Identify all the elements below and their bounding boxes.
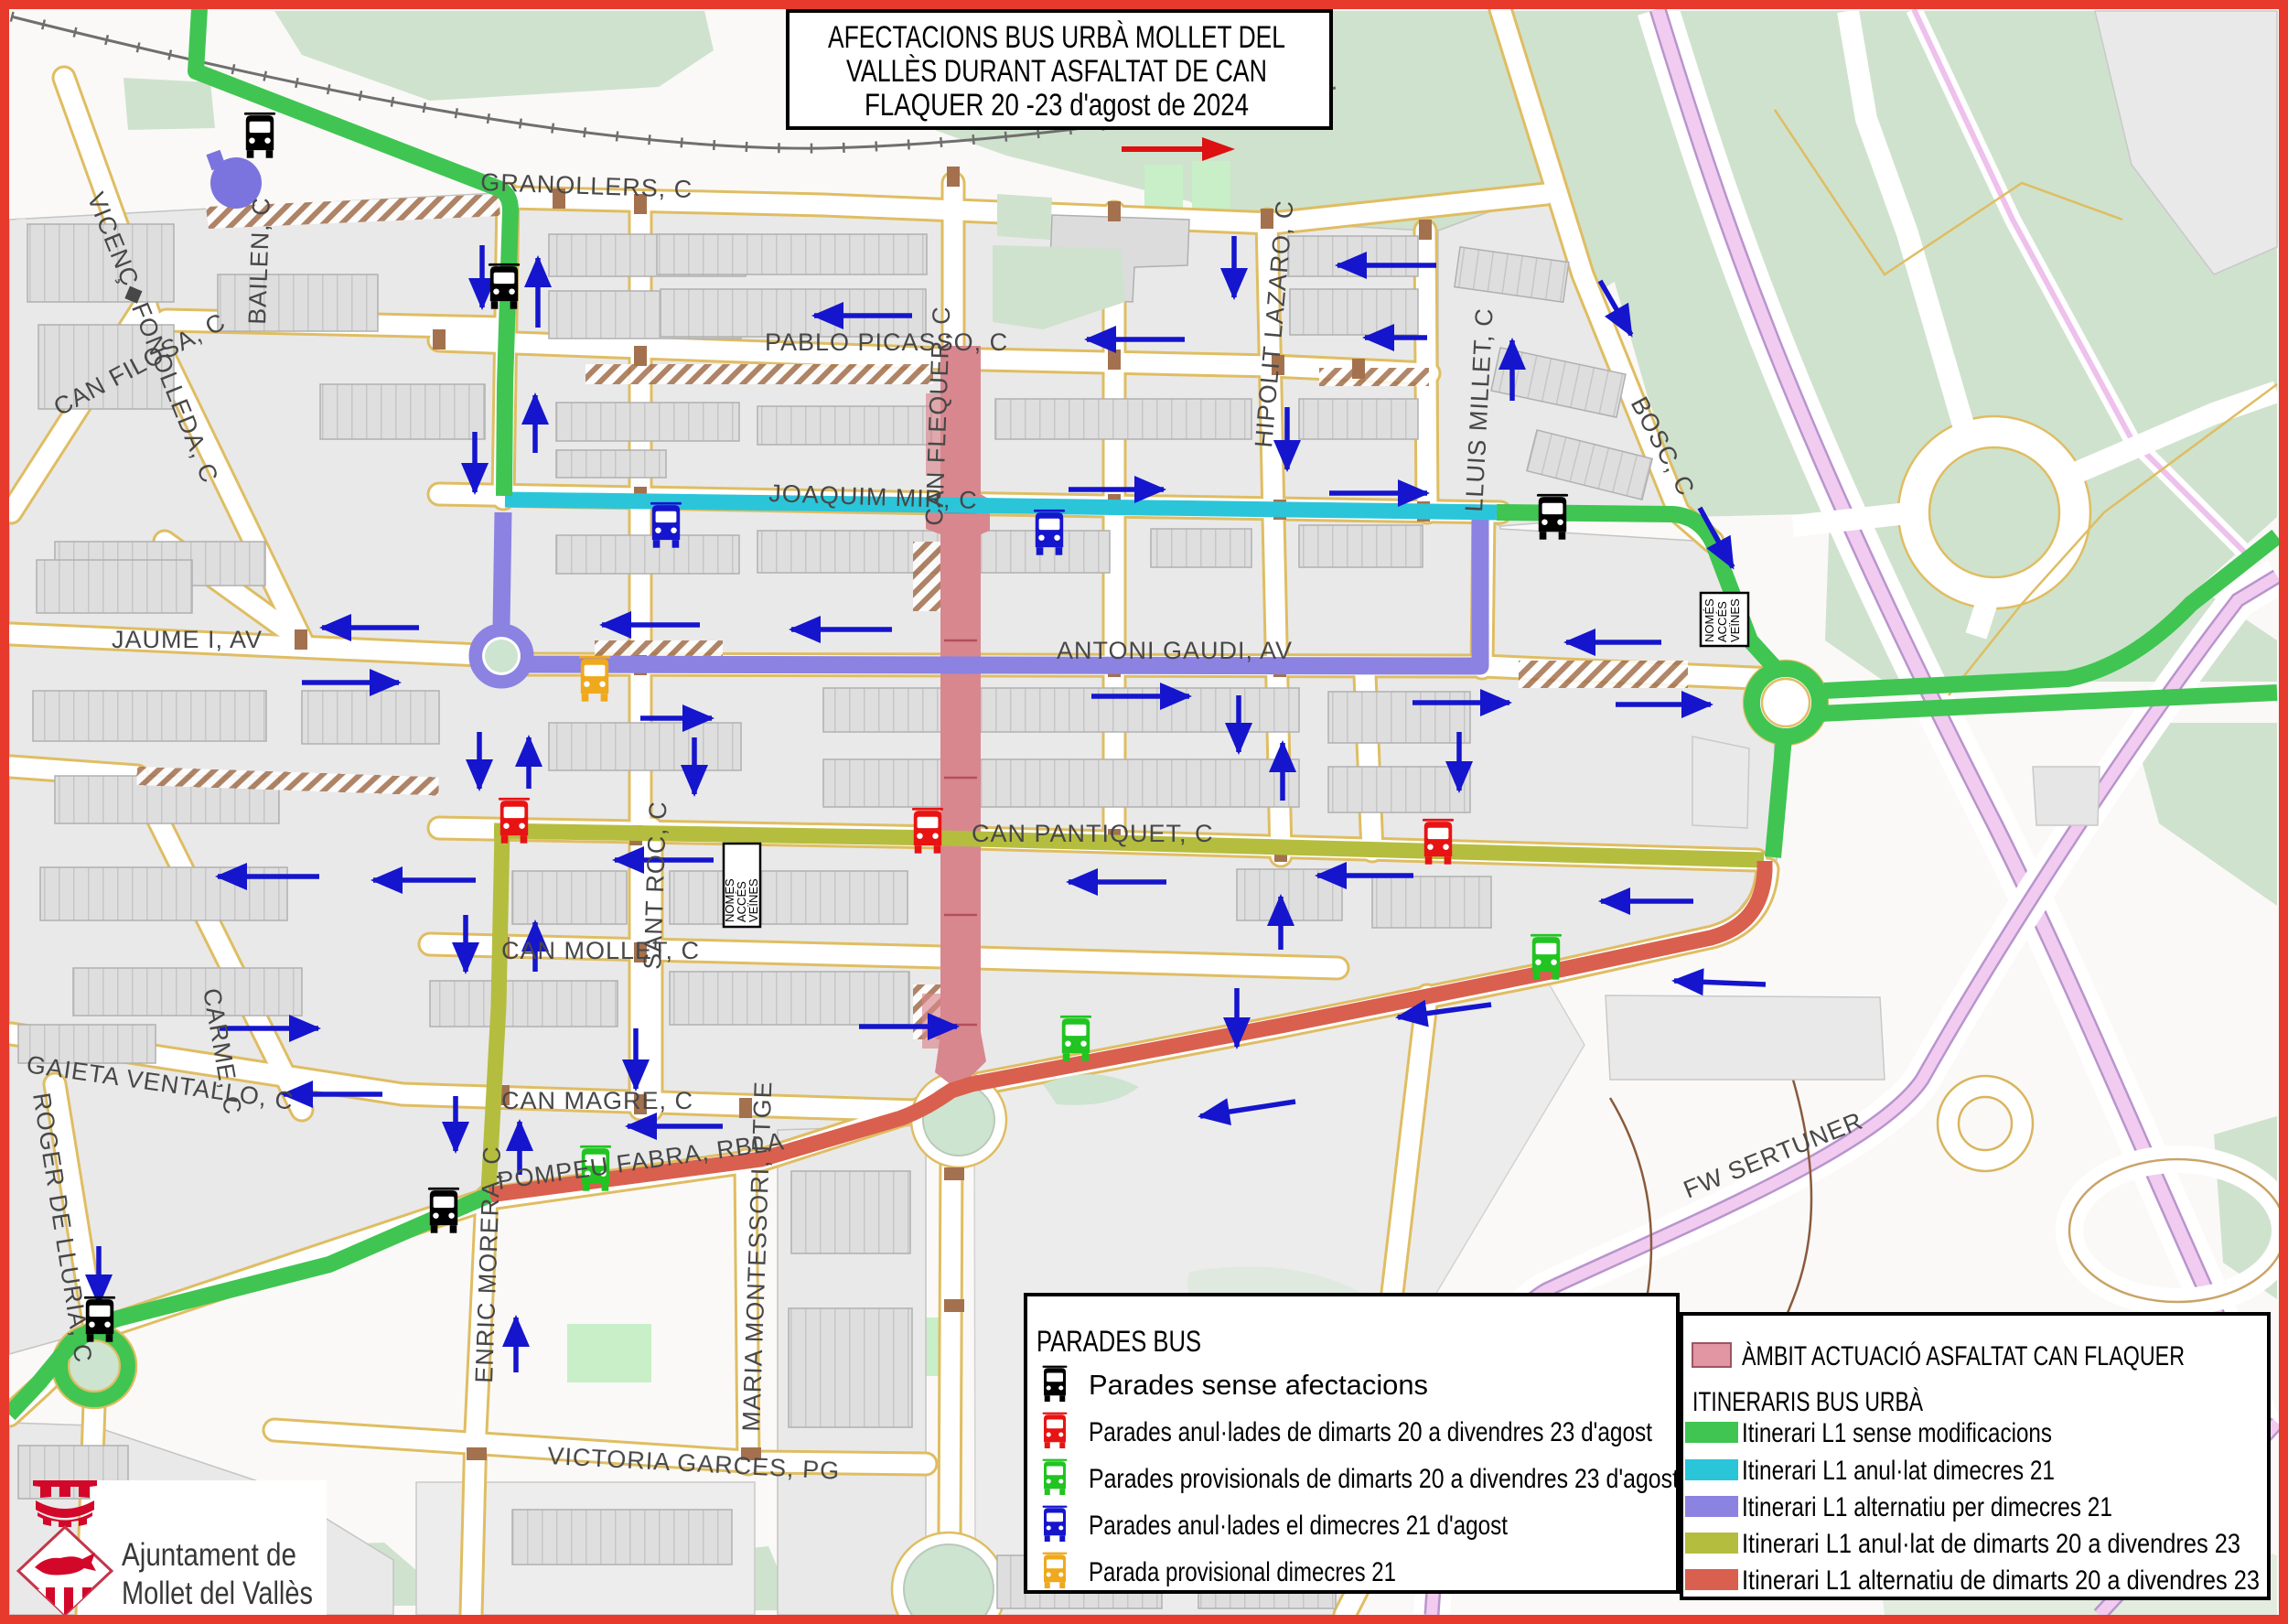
svg-text:Itinerari L1 anul·lat de dimar: Itinerari L1 anul·lat de dimarts 20 a di… [1742,1529,2240,1559]
svg-text:VEÏNES: VEÏNES [747,878,760,922]
svg-text:CAN MOLLET, C: CAN MOLLET, C [501,937,700,964]
svg-text:Mollet del Vallès: Mollet del Vallès [122,1576,313,1611]
svg-text:PABLO PICASSO, C: PABLO PICASSO, C [765,328,1008,356]
svg-text:Ajuntament de: Ajuntament de [122,1537,296,1573]
svg-text:Itinerari L1 sense modificacio: Itinerari L1 sense modificacions [1742,1418,2052,1448]
svg-text:PARADES BUS: PARADES BUS [1037,1325,1201,1358]
svg-text:Parada provisional dimecres 21: Parada provisional dimecres 21 [1089,1557,1396,1587]
svg-text:JAUME I, AV: JAUME I, AV [112,626,263,653]
svg-text:Parades provisionals de dimart: Parades provisionals de dimarts 20 a div… [1089,1464,1680,1494]
svg-text:AFECTACIONS BUS URBÀ MOLLET D: AFECTACIONS BUS URBÀ MOLLET DEL [828,20,1285,55]
svg-text:ITINERARIS BUS URBÀ: ITINERARIS BUS URBÀ [1692,1387,1923,1417]
svg-text:Itinerari L1 anul·lat dimecres: Itinerari L1 anul·lat dimecres 21 [1742,1456,2055,1486]
svg-text:CAN PANTIQUET, C: CAN PANTIQUET, C [972,820,1214,847]
svg-text:Itinerari L1 alternatiu per di: Itinerari L1 alternatiu per dimecres 21 [1742,1492,2112,1522]
svg-text:FLAQUER 20 -23 d'agost de 2024: FLAQUER 20 -23 d'agost de 2024 [865,88,1249,123]
svg-text:ACCÉS: ACCÉS [1715,601,1729,642]
svg-text:ÀMBIT ACTUACIÓ ASFALTAT CAN FL: ÀMBIT ACTUACIÓ ASFALTAT CAN FLAQUER [1742,1341,2185,1371]
svg-text:Parades anul·lades el dimecres: Parades anul·lades el dimecres 21 d'agos… [1089,1511,1509,1541]
svg-text:ANTONI GAUDI, AV: ANTONI GAUDI, AV [1057,637,1293,664]
svg-text:CAN MAGRE, C: CAN MAGRE, C [501,1087,693,1114]
svg-text:VALLÈS DURANT ASFALTAT DE CAN: VALLÈS DURANT ASFALTAT DE CAN [846,54,1267,89]
svg-text:BAILEN, C: BAILEN, C [243,197,275,326]
svg-text:Parades sense afectacions: Parades sense afectacions [1089,1369,1428,1401]
svg-text:VEÏNES: VEÏNES [1728,598,1742,642]
svg-text:Parades anul·lades de dimarts: Parades anul·lades de dimarts 20 a diven… [1089,1417,1653,1447]
svg-text:NOMÉS: NOMÉS [1703,598,1716,642]
svg-text:Itinerari L1 alternatiu de dim: Itinerari L1 alternatiu de dimarts 20 a … [1742,1565,2260,1596]
